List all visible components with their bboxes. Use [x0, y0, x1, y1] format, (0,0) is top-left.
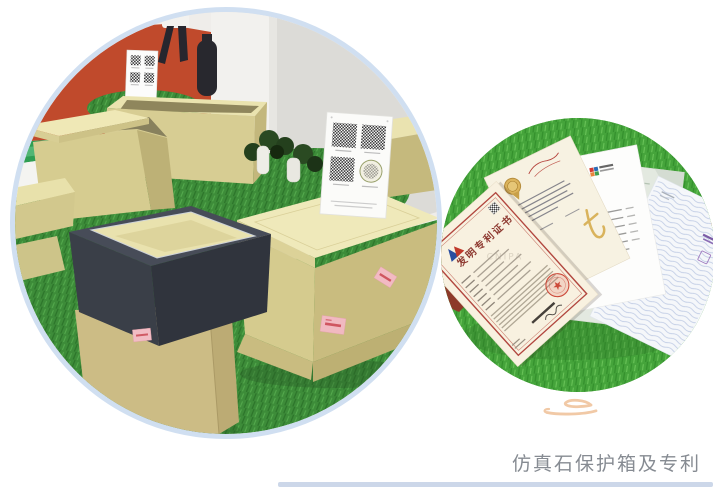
pink-label [320, 315, 346, 334]
caption-text: 仿真石保护箱及专利 [512, 449, 701, 476]
page: 发明专利证书 CNIPA [0, 0, 713, 488]
cloud-decoration-icon [539, 398, 605, 420]
left-photo-circle [10, 7, 442, 439]
exhibition-photo [15, 12, 437, 434]
qr-sign-back [125, 50, 158, 98]
dark-vase [197, 34, 217, 96]
qr-sign-front [320, 112, 393, 218]
right-photo-circle: 发明专利证书 CNIPA [441, 118, 713, 392]
bottom-divider [278, 482, 713, 487]
pink-label [132, 328, 151, 342]
certificates-photo: 发明专利证书 CNIPA [441, 118, 713, 392]
